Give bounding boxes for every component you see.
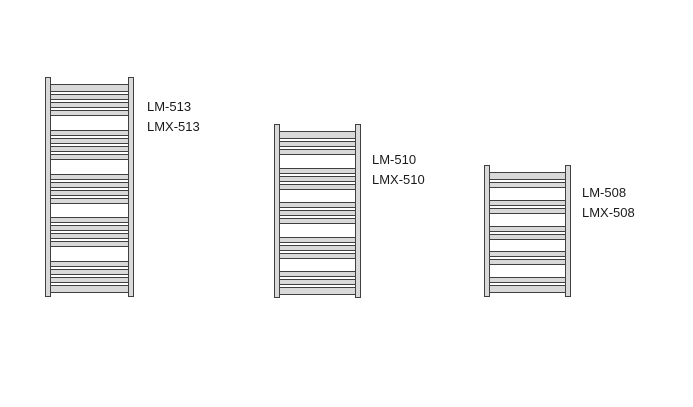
radiator-rung bbox=[50, 277, 129, 283]
rung-group bbox=[279, 237, 356, 259]
radiator-rung bbox=[50, 146, 129, 152]
rung-group bbox=[50, 130, 129, 160]
rung-group bbox=[279, 271, 356, 295]
radiator-rung bbox=[50, 225, 129, 231]
radiator-rung bbox=[50, 285, 129, 293]
radiator-rung bbox=[279, 245, 356, 251]
radiator-rung bbox=[279, 271, 356, 277]
radiator-rung bbox=[50, 198, 129, 204]
radiator-rung bbox=[279, 202, 356, 208]
radiator-rung bbox=[50, 182, 129, 188]
model-code: LMX-513 bbox=[147, 117, 200, 137]
rung-group bbox=[489, 277, 566, 293]
rung-group bbox=[489, 172, 566, 188]
rung-group bbox=[50, 261, 129, 293]
model-code: LM-508 bbox=[582, 183, 635, 203]
radiator-rung bbox=[279, 218, 356, 224]
radiator-lm-508 bbox=[484, 165, 571, 297]
rung-group bbox=[279, 202, 356, 224]
radiator-lm-510 bbox=[274, 124, 361, 298]
radiator-rung bbox=[279, 237, 356, 243]
radiator-rung bbox=[50, 174, 129, 180]
radiator-rung bbox=[489, 208, 566, 214]
radiator-rung bbox=[489, 285, 566, 293]
radiator-rung bbox=[489, 200, 566, 206]
radiator-rung bbox=[50, 110, 129, 116]
model-code: LMX-508 bbox=[582, 203, 635, 223]
radiator-rung bbox=[279, 141, 356, 147]
radiator-rung bbox=[50, 94, 129, 100]
radiator-rung bbox=[489, 172, 566, 180]
diagram-canvas: LM-513LMX-513LM-510LMX-510LM-508LMX-508 bbox=[0, 0, 693, 407]
radiator-rung bbox=[50, 102, 129, 108]
radiator-rung bbox=[279, 168, 356, 174]
radiator-rung bbox=[50, 130, 129, 136]
radiator-rung bbox=[50, 217, 129, 223]
radiator-rung bbox=[279, 210, 356, 216]
model-code: LM-513 bbox=[147, 97, 200, 117]
radiator-lm-513 bbox=[45, 77, 134, 297]
radiator-rung bbox=[279, 253, 356, 259]
radiator-rung bbox=[279, 279, 356, 285]
radiator-rung bbox=[279, 184, 356, 190]
radiator-lm-513-label: LM-513LMX-513 bbox=[147, 97, 200, 137]
model-code: LM-510 bbox=[372, 150, 425, 170]
rung-group bbox=[279, 131, 356, 155]
radiator-rung bbox=[50, 233, 129, 239]
radiator-lm-510-rungs bbox=[279, 131, 356, 295]
radiator-rung bbox=[50, 154, 129, 160]
model-code: LMX-510 bbox=[372, 170, 425, 190]
radiator-lm-508-rungs bbox=[489, 172, 566, 293]
rung-group bbox=[489, 251, 566, 265]
radiator-rung bbox=[279, 131, 356, 139]
rung-group bbox=[50, 84, 129, 116]
rung-group bbox=[50, 174, 129, 204]
radiator-rung bbox=[50, 138, 129, 144]
radiator-rung bbox=[50, 269, 129, 275]
radiator-lm-510-label: LM-510LMX-510 bbox=[372, 150, 425, 190]
radiator-rung bbox=[50, 241, 129, 247]
radiator-rung bbox=[279, 287, 356, 295]
radiator-rung bbox=[489, 226, 566, 232]
radiator-lm-508-label: LM-508LMX-508 bbox=[582, 183, 635, 223]
rung-group bbox=[489, 200, 566, 214]
radiator-rung bbox=[50, 261, 129, 267]
radiator-rung bbox=[489, 182, 566, 188]
radiator-rung bbox=[489, 259, 566, 265]
rung-group bbox=[279, 168, 356, 190]
radiator-lm-513-rungs bbox=[50, 84, 129, 293]
radiator-rung bbox=[489, 277, 566, 283]
rung-group bbox=[489, 226, 566, 240]
radiator-rung bbox=[279, 176, 356, 182]
radiator-rung bbox=[50, 190, 129, 196]
radiator-rung bbox=[489, 251, 566, 257]
radiator-rung bbox=[489, 234, 566, 240]
radiator-rung bbox=[279, 149, 356, 155]
radiator-rung bbox=[50, 84, 129, 92]
rung-group bbox=[50, 217, 129, 247]
